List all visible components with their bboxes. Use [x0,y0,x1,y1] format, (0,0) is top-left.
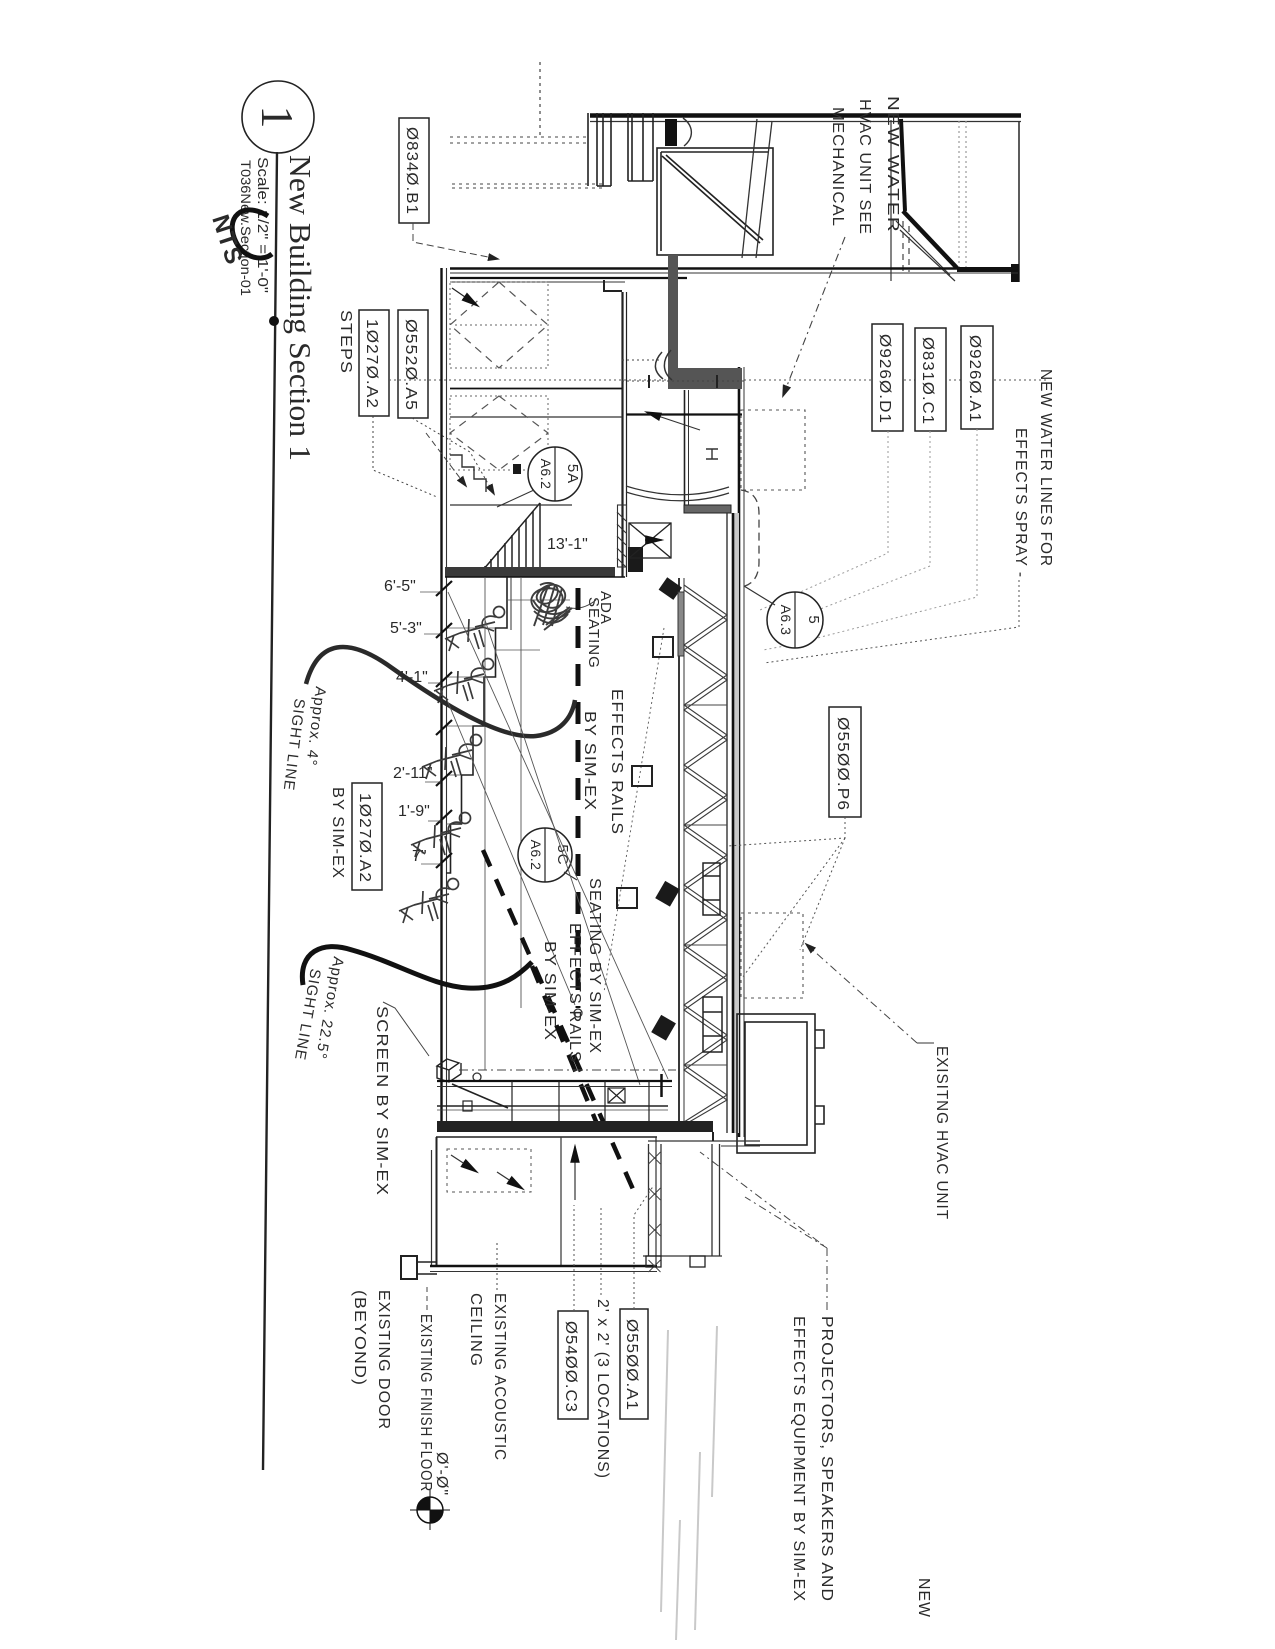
svg-text:Ø834Ø.B1: Ø834Ø.B1 [403,127,420,215]
svg-text:Scale: 1/2" = 1'-0": Scale: 1/2" = 1'-0" [254,157,271,293]
svg-text:MECHANICAL: MECHANICAL [829,107,846,227]
svg-text:A6.2: A6.2 [528,840,544,871]
svg-text:SCREEN BY SIM-EX: SCREEN BY SIM-EX [373,1006,390,1196]
svg-text:1: 1 [252,106,303,129]
svg-text:NEW WATER LINES FOR: NEW WATER LINES FOR [1037,369,1054,567]
svg-text:1'-9": 1'-9" [398,803,430,820]
svg-text:13'-1": 13'-1" [547,536,588,553]
svg-text:STEPS: STEPS [337,310,354,374]
svg-text:Ø926Ø.D1: Ø926Ø.D1 [876,334,893,424]
svg-text:Ø926Ø.A1: Ø926Ø.A1 [966,335,983,423]
svg-text:EFFECTS RAILS: EFFECTS RAILS [608,689,625,835]
svg-text:SEATING: SEATING [585,597,602,669]
svg-text:A6.3: A6.3 [778,605,794,636]
svg-text:EFFECTS SPRAY -: EFFECTS SPRAY - [1012,428,1029,578]
svg-text:Ø'-Ø": Ø'-Ø" [433,1452,450,1496]
svg-text:A6.2: A6.2 [538,459,554,490]
svg-text:Ø552Ø.A5: Ø552Ø.A5 [402,319,419,411]
svg-text:EFFECTS RAILS: EFFECTS RAILS [566,923,583,1063]
svg-text:Ø831Ø.C1: Ø831Ø.C1 [919,337,936,425]
svg-text:SEATING BY SIM-EX: SEATING BY SIM-EX [586,878,603,1054]
svg-text:HVAC UNIT SEE: HVAC UNIT SEE [856,99,873,235]
svg-text:5A: 5A [564,464,581,484]
svg-text:BY SIM-EX: BY SIM-EX [329,787,346,879]
svg-text:EXISTING DOOR: EXISTING DOOR [375,1290,392,1430]
svg-text:2'-11": 2'-11" [393,765,433,782]
svg-text:6'-5": 6'-5" [384,578,416,595]
svg-text:NEW WATER: NEW WATER [884,96,901,233]
svg-text:EXISTING ACOUSTIC: EXISTING ACOUSTIC [491,1293,508,1461]
svg-text:T036New.Section-01: T036New.Section-01 [238,160,254,296]
svg-text:CEILING: CEILING [467,1293,484,1367]
svg-text:NEW: NEW [915,1578,932,1618]
svg-text:2' x 2' (3 LOCATIONS): 2' x 2' (3 LOCATIONS) [594,1299,611,1479]
svg-text:BY SIM-EX: BY SIM-EX [541,941,558,1041]
svg-text:Ø55ØØ.A1: Ø55ØØ.A1 [623,1319,640,1411]
svg-text:(BEYOND): (BEYOND) [351,1290,368,1386]
svg-text:1Ø27Ø.A2: 1Ø27Ø.A2 [363,319,380,409]
svg-text:BY SIM-EX: BY SIM-EX [581,711,598,811]
svg-text:Ø54ØØ.C3: Ø54ØØ.C3 [562,1321,579,1413]
svg-text:EFFECTS EQUIPMENT BY SIM-EX: EFFECTS EQUIPMENT BY SIM-EX [790,1316,807,1602]
svg-text:Ø55ØØ.P6: Ø55ØØ.P6 [834,717,851,811]
svg-text:5C: 5C [554,844,571,865]
svg-text:New Building Section 1: New Building Section 1 [283,155,318,461]
svg-text:PROJECTORS, SPEAKERS AND: PROJECTORS, SPEAKERS AND [818,1316,835,1602]
svg-text:EXISTING FINISH FLOOR: EXISTING FINISH FLOOR [417,1314,434,1492]
svg-text:5'-3": 5'-3" [390,620,422,637]
svg-text:EXISITNG HVAC UNIT: EXISITNG HVAC UNIT [933,1046,950,1220]
svg-text:1Ø27Ø.A2: 1Ø27Ø.A2 [356,793,373,883]
svg-text:5: 5 [805,615,822,624]
